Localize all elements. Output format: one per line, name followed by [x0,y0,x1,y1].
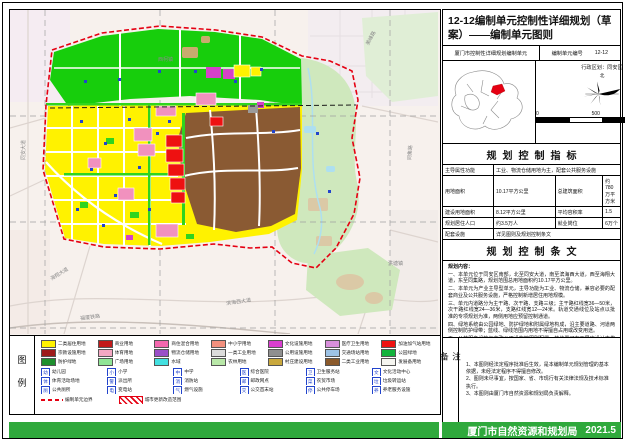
facility-icon: 菜 [306,377,315,385]
legend-label: 农林用地 [228,359,246,365]
color-swatch [381,358,396,366]
legend-label: 水域 [171,359,180,365]
facility-icon: 邮 [240,377,249,385]
legend-title: 图例 [10,336,35,414]
publish-date: 2021.5 [585,425,616,436]
legend-body: 二类居住用地 商业用地 商住混合用地 中小学用地 [35,336,440,414]
legend-color-item: 交通场站用地 [325,349,378,357]
legend-label: 文化设施用地 [285,341,313,347]
legend-icon-item: 厕 公共厕所 [41,386,103,394]
remarks-body: 1、本图则经法定程序批准后生效，是本编制单元规划管理的基本依据，未经法定程序不得… [459,338,620,422]
indicator-label: 配套设施 [443,229,494,239]
provisions-heading: 规划内容： [448,264,615,271]
legend-label: 变电站 [118,387,132,393]
provision-paragraph: 二、本单元为产业主导型单元，主导功能为工业、物流仓储，兼容必要的配套商业及公共服… [448,286,615,299]
legend-color-item: 体育用地 [98,349,151,357]
facility-icon: 厕 [41,386,50,394]
provision-paragraph: 一、本单元位于同安区南部，北至同安大道，南至滨海西大道，西至海翔大道，东至同集路… [448,272,615,285]
indicator-label: 总建筑面积 [556,176,603,206]
facility-icon: 交 [240,386,249,394]
legend-color-item: 医疗卫生用地 [325,340,378,348]
legend-icon-item: 养 养老服务设施 [372,386,434,394]
legend-label: 公共停车场 [317,387,340,393]
color-swatch [268,340,283,348]
district-label: 行政区划：同安区 [581,64,623,71]
color-swatch [41,349,56,357]
facility-icon: 卫 [306,368,315,376]
remark-item: 2、图则未尽事宜，按国家、省、市现行有关法律法规及技术标准执行。 [466,376,613,391]
city-outline-map [443,66,535,138]
legend-icon-item: 医 综合医院 [240,368,302,376]
indicator-value: 10.17平方公里 [494,176,556,206]
map-road-label: 同安大道 [22,140,27,160]
legend-line-item: 城市更新改造范围 [119,396,182,404]
facility-icon: 中 [173,368,182,376]
unit-name: 厦门市控制性详细规划编制单元 [443,46,540,60]
location-row: 行政区划：同安区 北 0 500 [443,61,620,143]
orientation-column: 行政区划：同安区 北 0 500 [536,61,625,143]
scale-mid: 500 [592,112,600,118]
indicator-value: 8.12平方公里 [494,207,556,217]
legend-label: 二类居住用地 [58,341,86,347]
legend-label: 商业用地 [115,341,133,347]
legend-color-item: 物流仓储用地 [154,349,207,357]
indicator-label: 建设用地面积 [443,207,494,217]
provisions-header: 规划控制条文 [443,239,620,261]
legend-color-item: 商住混合用地 [154,340,207,348]
plan-sheet: 同安大道 海翔大道 同集路 滨海西大道 福厦铁路 美峰路 西柯镇 洪塘镇 图例 [0,0,625,441]
legend-label: 公用设施用地 [285,350,313,356]
legend-icon-item: 幼 幼儿园 [41,368,103,376]
legend-label: 一类工业用地 [228,350,256,356]
unit-info-row: 厦门市控制性详细规划编制单元 编制单元编号 12-12 [443,45,620,61]
legend-label: 消防站 [184,378,198,384]
legend-color-item: 二类居住用地 [41,340,94,348]
legend-color-item: 发展备用地 [381,358,434,366]
legend-label: 文化活动中心 [383,369,411,375]
legend-label: 编制单元边界 [65,397,93,403]
legend-label: 体育用地 [115,350,133,356]
color-swatch [154,358,169,366]
indicators-table: 主导属性功能 工业、物流仓储用地为主，配套公共服务设施 用地面积 10.17平方… [443,165,620,239]
color-swatch [381,349,396,357]
indicator-value: 工业、物流仓储用地为主，配套公共服务设施 [494,165,620,175]
color-swatch [381,340,396,348]
facility-icon: 养 [372,386,381,394]
legend-label: 垃圾转运站 [383,378,406,384]
legend-label: 幼儿园 [52,369,66,375]
legend-color-item: 村庄建设用地 [268,358,321,366]
legend-icon-item: 消 消防站 [173,377,235,385]
remark-item: 1、本图则经法定程序批准后生效，是本编制单元规划管理的基本依据，未经法定程序不得… [466,362,613,377]
color-swatch [211,349,226,357]
legend-line-grid: 编制单元边界 城市更新改造范围 [41,396,434,404]
legend-label: 二类工业用地 [342,359,370,365]
legend-color-item: 水域 [154,358,207,366]
legend-color-item: 一类工业用地 [211,349,264,357]
facility-icon: 垃 [372,377,381,385]
legend-color-item: 防护绿地 [41,358,94,366]
legend-label: 医疗卫生用地 [342,341,370,347]
wind-rose-icon [576,79,625,109]
sheet-border: 同安大道 海翔大道 同集路 滨海西大道 福厦铁路 美峰路 西柯镇 洪塘镇 图例 [2,2,623,439]
legend-label: 中学 [184,369,193,375]
legend-color-item: 商业用地 [98,340,151,348]
color-swatch [325,340,340,348]
facility-icon: 体 [41,377,50,385]
legend-color-item: 加油加气站用地 [381,340,434,348]
indicators-header: 规划控制指标 [443,143,620,165]
color-swatch [41,340,56,348]
color-swatch [98,340,113,348]
legend-icon-item: 卫 卫生服务站 [306,368,368,376]
legend-icon-item: 气 燃气设施 [173,386,235,394]
indicator-label: 主导属性功能 [443,165,494,175]
legend-label: 燃气设施 [184,387,202,393]
map-panel: 同安大道 海翔大道 同集路 滨海西大道 福厦铁路 美峰路 西柯镇 洪塘镇 [9,9,441,337]
legend-label: 派出所 [118,378,132,384]
legend-icon-item: 小 小学 [107,368,169,376]
legend-label: 交通场站用地 [342,350,370,356]
legend-color-item: 公用设施用地 [268,349,321,357]
facility-icon: 气 [173,386,182,394]
legend-label: 公园绿地 [398,350,416,356]
remarks-label: 备注 [443,338,459,422]
legend-label: 村庄建设用地 [285,359,313,365]
remarks-section: 备注 1、本图则经法定程序批准后生效，是本编制单元规划管理的基本依据，未经法定程… [443,337,620,422]
legend-icon-grid: 幼 幼儿园 小 小学 中 中学 医 综合医院 [41,368,434,394]
publisher: 厦门市自然资源和规划局 [467,423,577,438]
legend-color-item: 广场用地 [98,358,151,366]
provision-paragraph: 四、绿地系统由公园绿地、防护绿地和附属绿地构成，沿主要道路、河道两侧控制防护绿带… [448,322,615,335]
map-road-label: 洪塘镇 [388,262,403,267]
legend-color-item: 二类工业用地 [325,358,378,366]
color-swatch [154,349,169,357]
legend-color-item: 公园绿地 [381,349,434,357]
legend-panel: 图例 二类居住用地 商业用地 商住混合用地 [9,335,441,415]
legend-label: 卫生服务站 [317,369,340,375]
indicator-label: 用地面积 [443,176,494,206]
legend-label: 物流仓储用地 [171,350,199,356]
legend-icon-item: 中 中学 [173,368,235,376]
color-swatch [268,349,283,357]
legend-icon-item: 文 文化活动中心 [372,368,434,376]
color-swatch [211,358,226,366]
legend-label: 商住混合用地 [171,341,199,347]
info-panel: 12-12编制单元控制性详细规划（草案）——编制单元图则 厦门市控制性详细规划编… [442,9,621,423]
legend-label: 宗教设施用地 [58,350,86,356]
map-road-label: 西柯镇 [158,58,173,63]
line-swatch [119,396,143,404]
provision-paragraph: 三、单元内道路分为主干路、次干路、支路三级；主干路红线宽36—50米，次干路红线… [448,301,615,321]
legend-icon-item: 警 派出所 [107,377,169,385]
legend-label: 体育活动场地 [52,378,80,384]
legend-icon-item: 邮 邮政网点 [240,377,302,385]
color-swatch [211,340,226,348]
legend-icon-item: 菜 农贸市场 [306,377,368,385]
indicator-value: 约780万平方米 [603,176,620,206]
legend-icon-item: 体 体育活动场地 [41,377,103,385]
indicator-label: 平均容积率 [556,207,603,217]
indicator-value: 约3.5万人 [494,218,556,228]
remark-item: 3、本图则由厦门市自然资源和规划局负责解释。 [466,391,613,398]
facility-icon: 警 [107,377,116,385]
legend-icon-item: 交 公交首末站 [240,386,302,394]
legend-label: 中小学用地 [228,341,251,347]
indicator-value: 1.5 [603,207,620,217]
legend-color-item: 宗教设施用地 [41,349,94,357]
legend-color-item: 中小学用地 [211,340,264,348]
facility-icon: 幼 [41,368,50,376]
indicator-value: 6万个 [603,218,620,228]
footer-bar-left [9,422,439,438]
unit-no-value: 12-12 [595,50,608,56]
planning-zones [44,29,331,246]
indicator-label: 规划居住人口 [443,218,494,228]
scale-zero: 0 [536,112,539,118]
location-inset-map [443,61,536,143]
legend-label: 公交首末站 [251,387,274,393]
unit-no-label: 编制单元编号 [552,50,583,57]
legend-color-grid: 二类居住用地 商业用地 商住混合用地 中小学用地 [41,340,434,366]
legend-label: 综合医院 [251,369,269,375]
color-swatch [98,358,113,366]
legend-label: 养老服务设施 [383,387,411,393]
legend-icon-item: 电 变电站 [107,386,169,394]
color-swatch [41,358,56,366]
color-swatch [154,340,169,348]
provisions-paragraphs: 一、本单元位于同安区南部，北至同安大道，南至滨海西大道，西至海翔大道，东至同集路… [448,272,615,337]
planning-map [10,10,438,334]
legend-label: 发展备用地 [398,359,421,365]
color-swatch [98,349,113,357]
residential-blocks-north [234,65,261,77]
indicator-label: 就业岗位 [556,218,603,228]
color-swatch [325,349,340,357]
legend-label: 城市更新改造范围 [145,397,182,403]
sheet-title: 12-12编制单元控制性详细规划（草案）——编制单元图则 [443,10,620,45]
legend-label: 公共厕所 [52,387,70,393]
legend-color-item: 农林用地 [211,358,264,366]
facility-icon: 停 [306,386,315,394]
legend-label: 加油加气站用地 [398,341,430,347]
legend-line-item: 编制单元边界 [41,396,93,404]
legend-icon-item: 垃 垃圾转运站 [372,377,434,385]
footer-bar-right: 厦门市自然资源和规划局 2021.5 [442,422,621,438]
legend-label: 防护绿地 [58,359,76,365]
facility-icon: 医 [240,368,249,376]
unit-location-marker [491,84,505,95]
line-swatch [41,399,63,401]
indicator-value: 详见图则及规划控制条文 [494,229,620,239]
map-road-label: 同集路 [408,145,414,160]
legend-label: 小学 [118,369,127,375]
legend-color-item: 文化设施用地 [268,340,321,348]
facility-icon: 小 [107,368,116,376]
scale-bar: 0 500 1000M [536,112,625,123]
color-swatch [325,358,340,366]
legend-label: 广场用地 [115,359,133,365]
facility-icon: 文 [372,368,381,376]
legend-label: 邮政网点 [251,378,269,384]
color-swatch [268,358,283,366]
facility-icon: 消 [173,377,182,385]
provisions-body: 规划内容： 一、本单元位于同安区南部，北至同安大道，南至滨海西大道，西至海翔大道… [443,261,620,337]
legend-label: 农贸市场 [317,378,335,384]
legend-icon-item: 停 公共停车场 [306,386,368,394]
facility-icon: 电 [107,386,116,394]
